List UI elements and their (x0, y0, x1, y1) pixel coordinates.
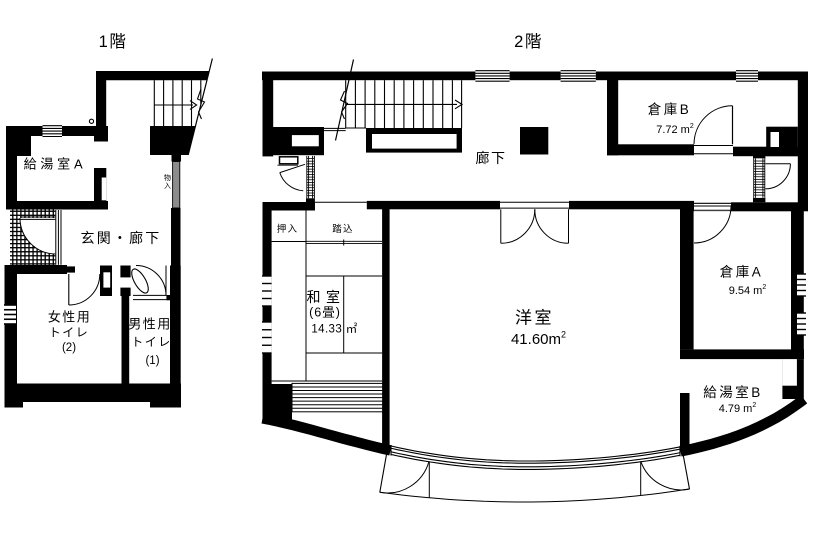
svg-text:14.33 ㎡: 14.33 ㎡ (311, 323, 357, 336)
svg-text:9.54 m2: 9.54 m2 (729, 284, 767, 297)
svg-text:(6畳): (6畳) (309, 306, 341, 320)
svg-text:7.72 m2: 7.72 m2 (656, 123, 694, 136)
svg-text:倉庫B: 倉庫B (648, 102, 692, 117)
svg-text:給湯室B: 給湯室B (703, 384, 763, 400)
svg-text:1階: 1階 (99, 32, 128, 51)
svg-text:男性用: 男性用 (128, 317, 171, 332)
svg-text:廊下: 廊下 (476, 150, 507, 166)
svg-text:トイレ: トイレ (49, 326, 90, 340)
svg-text:(1): (1) (145, 355, 159, 367)
svg-text:倉庫A: 倉庫A (720, 265, 764, 280)
svg-text:押入: 押入 (277, 223, 298, 235)
svg-text:給湯室A: 給湯室A (24, 157, 87, 172)
svg-text:和室: 和室 (307, 289, 346, 305)
svg-text:2階: 2階 (514, 32, 543, 51)
svg-text:41.60m2: 41.60m2 (511, 329, 566, 348)
svg-text:洋室: 洋室 (515, 309, 554, 328)
svg-text:(2): (2) (62, 342, 76, 354)
svg-text:玄関・廊下: 玄関・廊下 (81, 230, 162, 246)
svg-text:入: 入 (164, 182, 171, 190)
svg-text:トイレ: トイレ (131, 335, 172, 349)
svg-text:物: 物 (164, 173, 171, 182)
svg-text:女性用: 女性用 (48, 310, 91, 325)
svg-text:踏込: 踏込 (332, 223, 353, 235)
svg-text:4.79 m2: 4.79 m2 (719, 402, 757, 415)
